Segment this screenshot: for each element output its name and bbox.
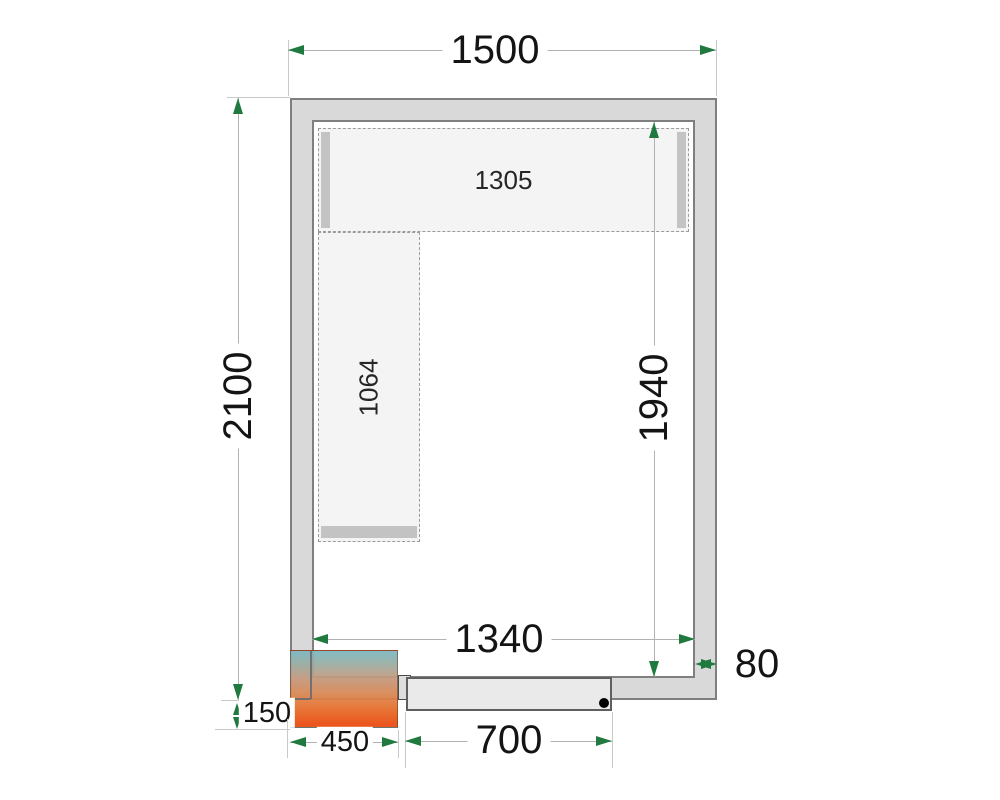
arrow-right-icon: [596, 736, 612, 746]
shelf-left-label: 1064: [354, 358, 385, 416]
cold-room-plan: 1305 1064 1500 2100 1940 1340 80 150 450: [0, 0, 1000, 800]
arrow-up-icon: [233, 98, 243, 114]
dim-450-label: 450: [317, 727, 373, 757]
shelf-top-label: 1305: [475, 165, 533, 196]
door-leaf: [406, 677, 612, 711]
arrow-right-icon: [700, 45, 716, 55]
arrow-right-icon: [382, 737, 398, 747]
arrow-down-icon: [649, 661, 659, 677]
shelf-support-left: [321, 132, 330, 228]
shelf-support-bottom: [321, 526, 417, 538]
arrow-left-icon: [405, 736, 421, 746]
arrow-right-icon: [701, 659, 717, 669]
arrow-right-icon: [679, 634, 695, 644]
dim-80-label: 80: [727, 643, 788, 685]
arrow-left-icon: [288, 45, 304, 55]
dim-1340-label: 1340: [447, 618, 552, 660]
dim-450-ext-left: [287, 719, 288, 758]
dim-1500-label: 1500: [443, 29, 548, 71]
dim-450-ext-right: [398, 730, 399, 758]
dim-700-ext-right: [612, 712, 613, 768]
dim-1500-ext-right: [716, 40, 717, 96]
arrow-up-icon: [649, 122, 659, 138]
wall-inner-edge-overlay: [310, 651, 312, 699]
dim-1940-label: 1940: [633, 346, 675, 451]
door-hinge-dot: [599, 698, 609, 708]
shelf-support-right: [677, 132, 686, 228]
arrow-left-icon: [290, 737, 306, 747]
dim-700-label: 700: [468, 719, 551, 761]
dim-2100-label: 2100: [217, 344, 259, 449]
arrow-left-icon: [312, 634, 328, 644]
shelf-top: 1305: [318, 128, 689, 232]
dim-150-ext-bottom: [215, 729, 290, 730]
shelf-left: 1064: [318, 232, 420, 542]
cooling-unit: [290, 650, 398, 728]
